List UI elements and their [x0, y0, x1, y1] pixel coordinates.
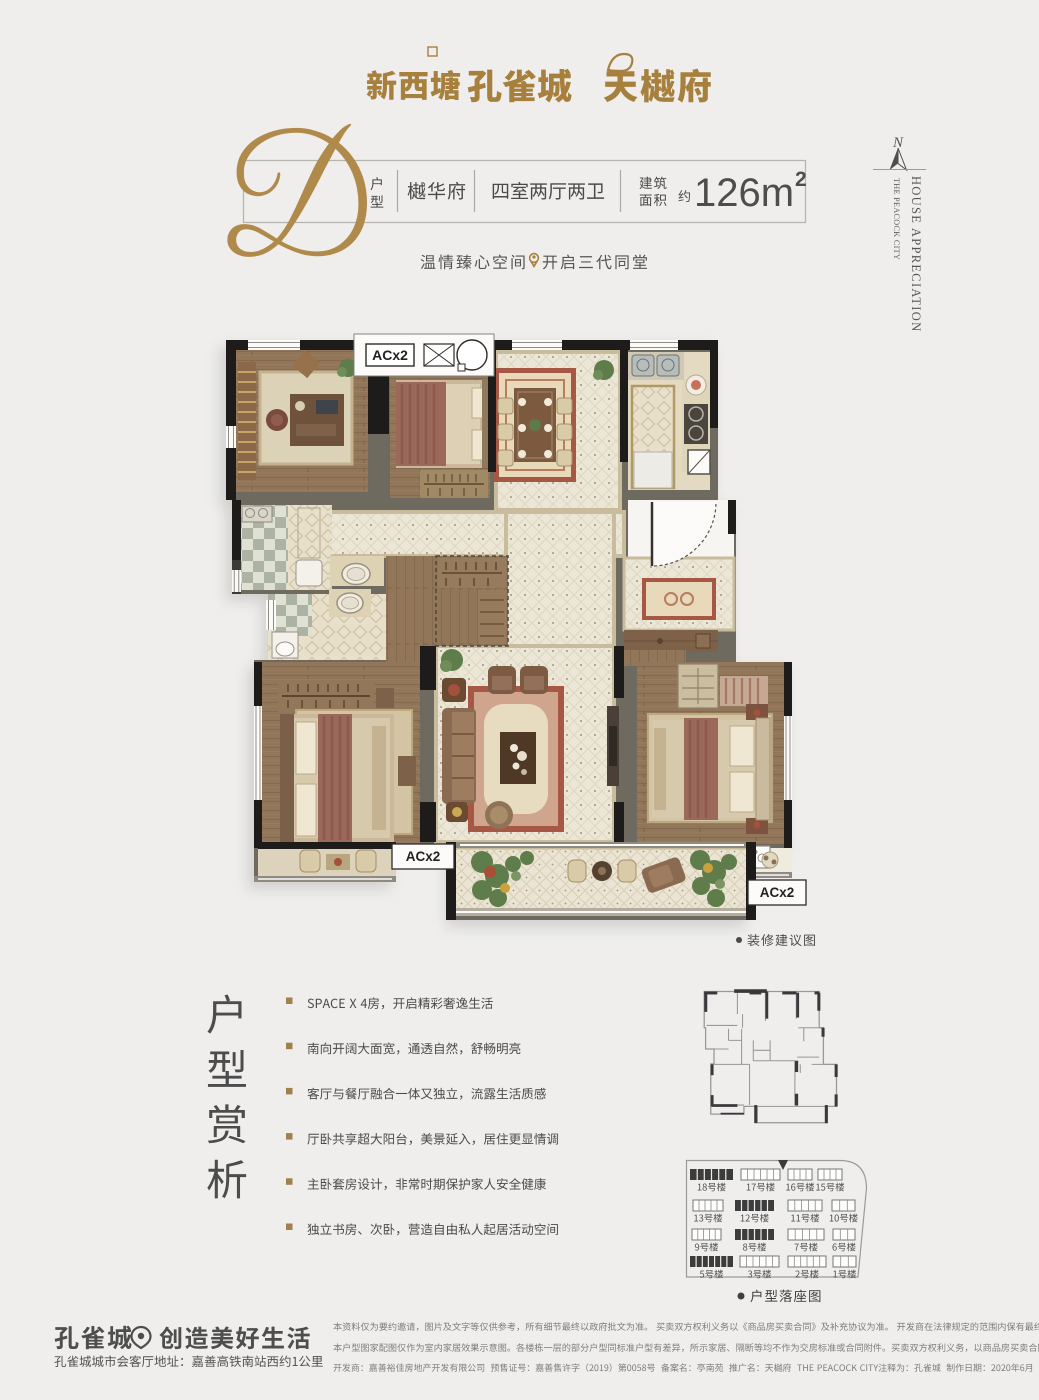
svg-text:ACx2: ACx2: [760, 885, 795, 900]
svg-text:ACx2: ACx2: [372, 347, 408, 363]
svg-text:THE PEACOCK CITY: THE PEACOCK CITY: [892, 178, 901, 260]
svg-text:HOUSE APPRECIATION: HOUSE APPRECIATION: [909, 176, 923, 332]
svg-text:126m: 126m: [694, 171, 794, 215]
svg-text:ACx2: ACx2: [406, 849, 441, 864]
svg-text:2: 2: [795, 168, 807, 191]
